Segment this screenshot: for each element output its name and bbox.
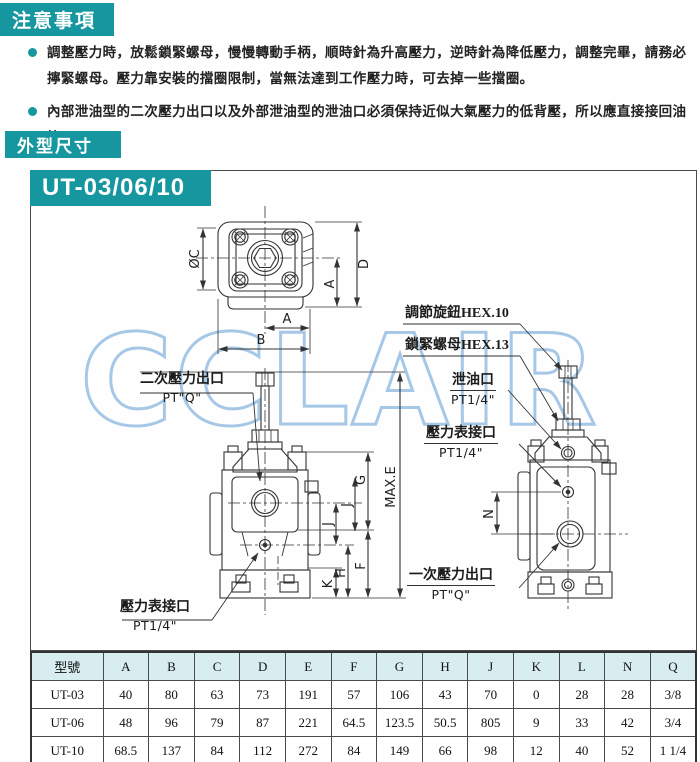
dimension-table: 型號 A B C D E F G H J K L N Q UT-03 40 80… bbox=[30, 651, 697, 762]
value-cell: 48 bbox=[103, 709, 149, 737]
dim-label-maxe: MAX.E bbox=[384, 466, 399, 507]
col-header: F bbox=[331, 652, 377, 681]
dim-label-k: K bbox=[321, 579, 336, 588]
col-header: J bbox=[468, 652, 514, 681]
value-cell: 73 bbox=[240, 681, 286, 709]
value-cell: 84 bbox=[331, 737, 377, 762]
col-header: N bbox=[605, 652, 651, 681]
col-header: G bbox=[377, 652, 423, 681]
value-cell: 43 bbox=[422, 681, 468, 709]
value-cell: 112 bbox=[240, 737, 286, 762]
dim-label-c: ØC bbox=[188, 249, 203, 268]
value-cell: 87 bbox=[240, 709, 286, 737]
table-row: UT-03 40 80 63 73 191 57 106 43 70 0 28 … bbox=[31, 681, 696, 709]
value-cell: 0 bbox=[513, 681, 559, 709]
value-cell: 80 bbox=[149, 681, 195, 709]
dim-label-a-side: A bbox=[323, 279, 338, 288]
col-header: Q bbox=[650, 652, 696, 681]
col-header: B bbox=[149, 652, 195, 681]
value-cell: 28 bbox=[559, 681, 605, 709]
col-header: H bbox=[422, 652, 468, 681]
value-cell: 106 bbox=[377, 681, 423, 709]
callout-secondary-outlet: 二次壓力出口 PT"Q" bbox=[138, 372, 226, 406]
col-header: K bbox=[513, 652, 559, 681]
dim-label-f: F bbox=[354, 562, 369, 569]
model-cell: UT-06 bbox=[31, 709, 103, 737]
callout-knob: 調節旋鈕HEX.10 bbox=[403, 306, 511, 323]
callout-gauge-side: 壓力表接口 PT1/4" bbox=[424, 426, 498, 461]
value-cell: 3/4 bbox=[650, 709, 696, 737]
value-cell: 50.5 bbox=[422, 709, 468, 737]
col-header: 型號 bbox=[31, 652, 103, 681]
value-cell: 12 bbox=[513, 737, 559, 762]
dim-label-a-bottom: A bbox=[283, 312, 292, 327]
value-cell: 40 bbox=[559, 737, 605, 762]
value-cell: 137 bbox=[149, 737, 195, 762]
col-header: E bbox=[285, 652, 331, 681]
col-header: L bbox=[559, 652, 605, 681]
value-cell: 191 bbox=[285, 681, 331, 709]
value-cell: 28 bbox=[605, 681, 651, 709]
value-cell: 66 bbox=[422, 737, 468, 762]
value-cell: 96 bbox=[149, 709, 195, 737]
table-row: UT-10 68.5 137 84 112 272 84 149 66 98 1… bbox=[31, 737, 696, 762]
value-cell: 79 bbox=[194, 709, 240, 737]
value-cell: 33 bbox=[559, 709, 605, 737]
value-cell: 42 bbox=[605, 709, 651, 737]
model-cell: UT-10 bbox=[31, 737, 103, 762]
col-header: A bbox=[103, 652, 149, 681]
callout-drain: 泄油口 PT1/4" bbox=[450, 373, 496, 408]
col-header: D bbox=[240, 652, 286, 681]
value-cell: 3/8 bbox=[650, 681, 696, 709]
value-cell: 805 bbox=[468, 709, 514, 737]
value-cell: 57 bbox=[331, 681, 377, 709]
value-cell: 52 bbox=[605, 737, 651, 762]
dim-label-g: G bbox=[354, 475, 369, 485]
col-header: C bbox=[194, 652, 240, 681]
dim-label-j2: J bbox=[321, 522, 336, 527]
value-cell: 272 bbox=[285, 737, 331, 762]
value-cell: 70 bbox=[468, 681, 514, 709]
dimension-letters: ØC D A A B G F J J H K MAX.E N bbox=[188, 249, 497, 588]
catalog-page: 注意事項 調整壓力時，放鬆鎖緊螺母，慢慢轉動手柄，順時針為升高壓力，逆時針為降低… bbox=[0, 0, 700, 762]
value-cell: 9 bbox=[513, 709, 559, 737]
dim-label-h: H bbox=[334, 568, 349, 578]
callout-primary-outlet: 一次壓力出口 PT"Q" bbox=[407, 568, 495, 603]
value-cell: 149 bbox=[377, 737, 423, 762]
value-cell: 123.5 bbox=[377, 709, 423, 737]
technical-drawing: ØC D A A B G F J J H K MAX.E N bbox=[0, 0, 700, 762]
value-cell: 64.5 bbox=[331, 709, 377, 737]
table-header-row: 型號 A B C D E F G H J K L N Q bbox=[31, 652, 696, 681]
value-cell: 68.5 bbox=[103, 737, 149, 762]
callout-locknut: 鎖緊螺母HEX.13 bbox=[403, 338, 511, 355]
callout-gauge-front: 壓力表接口 PT1/4" bbox=[118, 600, 192, 634]
value-cell: 1 1/4 bbox=[650, 737, 696, 762]
dim-label-b: B bbox=[257, 333, 266, 348]
value-cell: 63 bbox=[194, 681, 240, 709]
value-cell: 98 bbox=[468, 737, 514, 762]
value-cell: 221 bbox=[285, 709, 331, 737]
value-cell: 40 bbox=[103, 681, 149, 709]
dim-label-d: D bbox=[357, 259, 372, 269]
dim-label-n: N bbox=[482, 509, 497, 519]
table-row: UT-06 48 96 79 87 221 64.5 123.5 50.5 80… bbox=[31, 709, 696, 737]
value-cell: 84 bbox=[194, 737, 240, 762]
dim-label-j1: J bbox=[340, 503, 355, 508]
model-cell: UT-03 bbox=[31, 681, 103, 709]
